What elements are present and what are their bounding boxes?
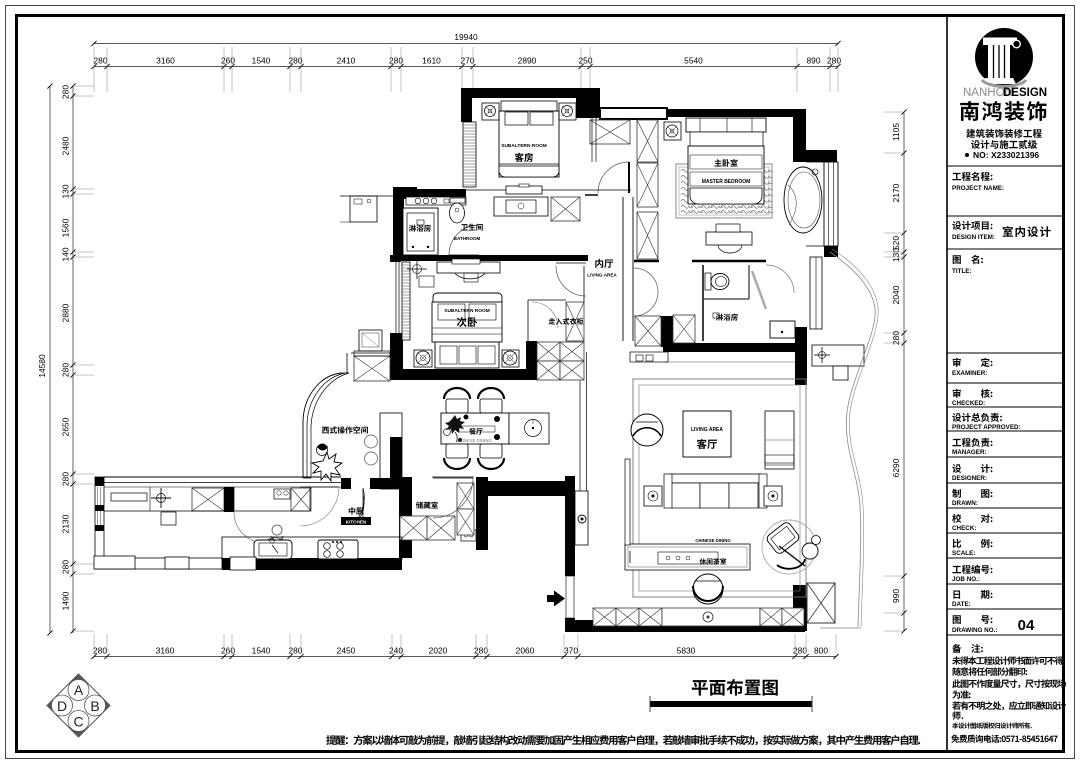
svg-text:CHINESE DINING: CHINESE DINING — [456, 438, 492, 443]
svg-text:800: 800 — [814, 646, 828, 656]
svg-text:3160: 3160 — [156, 56, 175, 66]
svg-text:270: 270 — [461, 56, 475, 66]
svg-text:1490: 1490 — [61, 591, 71, 610]
svg-text:2170: 2170 — [891, 183, 901, 202]
svg-text:3160: 3160 — [156, 646, 175, 656]
svg-text:2480: 2480 — [61, 136, 71, 155]
svg-text:2020: 2020 — [429, 646, 448, 656]
svg-text:2890: 2890 — [518, 56, 537, 66]
svg-text:260: 260 — [221, 646, 235, 656]
svg-text:2130: 2130 — [61, 514, 71, 533]
svg-text:PROJECT NAME:: PROJECT NAME: — [952, 185, 1004, 192]
svg-text:2410: 2410 — [337, 56, 356, 66]
svg-text:2040: 2040 — [891, 285, 901, 304]
svg-text:130: 130 — [61, 184, 71, 198]
svg-text:280: 280 — [61, 560, 71, 574]
svg-text:1540: 1540 — [252, 646, 271, 656]
svg-text:370: 370 — [564, 646, 578, 656]
svg-text:140: 140 — [61, 247, 71, 261]
svg-text:130: 130 — [891, 248, 901, 262]
svg-text:SCALE:: SCALE: — [952, 550, 975, 557]
svg-text:DESIGN: DESIGN — [1003, 87, 1047, 99]
svg-text:2650: 2650 — [61, 417, 71, 436]
svg-text:280: 280 — [61, 85, 71, 99]
svg-text:BATHROOM: BATHROOM — [454, 236, 481, 241]
svg-text:19940: 19940 — [454, 32, 478, 42]
svg-text:1540: 1540 — [252, 56, 271, 66]
svg-text:1105: 1105 — [891, 123, 901, 141]
svg-text:SUBALTERN ROOM: SUBALTERN ROOM — [501, 143, 546, 149]
svg-text:C: C — [73, 714, 83, 730]
svg-text:2060: 2060 — [516, 646, 535, 656]
svg-text:LIVING AREA: LIVING AREA — [587, 273, 617, 278]
svg-text:DATE:: DATE: — [952, 601, 971, 608]
svg-text:MASTER BEDROOM: MASTER BEDROOM — [702, 179, 751, 185]
svg-text:DESIGNER:: DESIGNER: — [952, 475, 987, 482]
svg-text:14580: 14580 — [37, 354, 47, 378]
svg-text:280: 280 — [61, 363, 71, 377]
svg-text:280: 280 — [289, 56, 303, 66]
svg-text:DRAWN:: DRAWN: — [952, 500, 978, 507]
svg-text:B: B — [90, 698, 99, 714]
svg-text:DRAWING NO.:: DRAWING NO.: — [952, 627, 997, 634]
svg-text:990: 990 — [891, 589, 901, 603]
svg-text:NO: X233021396: NO: X233021396 — [973, 150, 1039, 160]
svg-text:CHECK:: CHECK: — [952, 525, 977, 532]
svg-text:DESIGN ITEM:: DESIGN ITEM: — [952, 234, 995, 241]
svg-text:5540: 5540 — [684, 56, 703, 66]
svg-text:260: 260 — [221, 56, 235, 66]
svg-text:280: 280 — [289, 646, 303, 656]
svg-text:250: 250 — [579, 56, 593, 66]
svg-text:6290: 6290 — [891, 458, 901, 477]
svg-text:TITLE:: TITLE: — [952, 268, 972, 275]
svg-text:LIVING AREA: LIVING AREA — [691, 427, 723, 433]
svg-text:CHECKED:: CHECKED: — [952, 400, 985, 407]
svg-text:KITCHEN: KITCHEN — [346, 520, 367, 525]
svg-text:JOB NO.:: JOB NO.: — [952, 576, 980, 583]
svg-text:PROJECT APPROVED:: PROJECT APPROVED: — [952, 424, 1021, 431]
svg-text:890: 890 — [807, 56, 821, 66]
svg-text:280: 280 — [61, 472, 71, 486]
svg-text:D: D — [57, 698, 67, 714]
svg-text:2450: 2450 — [337, 646, 356, 656]
svg-text:280: 280 — [94, 56, 108, 66]
svg-text:280: 280 — [827, 56, 841, 66]
svg-text:SUBALTERN ROOM: SUBALTERN ROOM — [444, 308, 489, 314]
svg-text:EXAMINER:: EXAMINER: — [952, 370, 987, 377]
svg-text:520: 520 — [891, 236, 901, 250]
svg-text:1560: 1560 — [61, 218, 71, 237]
svg-text:280: 280 — [93, 646, 107, 656]
svg-text:A: A — [74, 682, 84, 698]
svg-text:1610: 1610 — [422, 56, 441, 66]
svg-text:5830: 5830 — [677, 646, 696, 656]
svg-text:04: 04 — [1018, 617, 1035, 634]
svg-text:CHINESE DINING: CHINESE DINING — [695, 538, 731, 543]
svg-text:2880: 2880 — [61, 303, 71, 322]
svg-text:MANAGER:: MANAGER: — [952, 449, 987, 456]
